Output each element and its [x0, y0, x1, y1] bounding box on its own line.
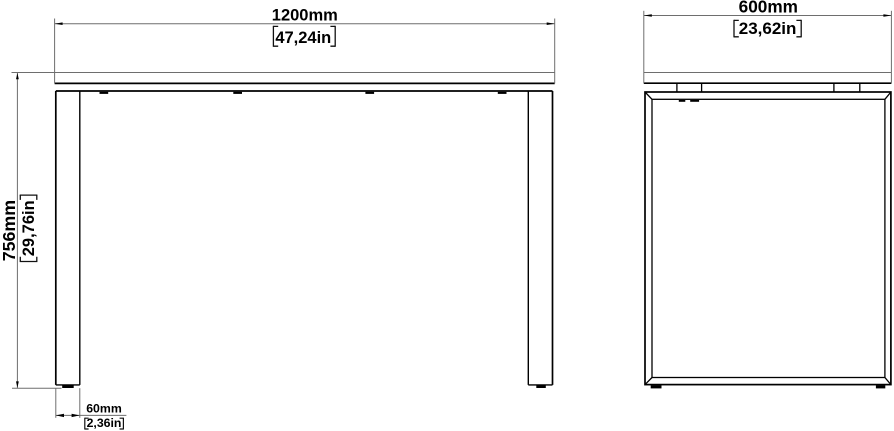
svg-text:29,76in: 29,76in: [20, 200, 38, 256]
svg-text:600mm: 600mm: [739, 0, 798, 17]
svg-text:23,62in: 23,62in: [739, 19, 797, 38]
svg-text:2,36in: 2,36in: [87, 416, 122, 430]
svg-text:756mm: 756mm: [0, 200, 19, 261]
svg-text:47,24in: 47,24in: [275, 29, 331, 47]
svg-text:1200mm: 1200mm: [272, 6, 338, 24]
svg-text:60mm: 60mm: [86, 401, 122, 415]
